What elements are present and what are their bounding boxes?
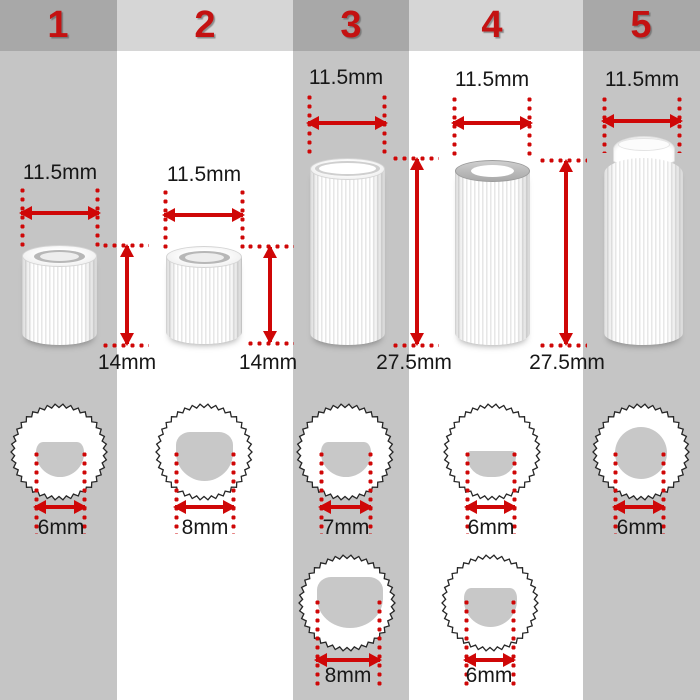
column-3-number: 3: [340, 2, 361, 48]
col4-height-arrow: [564, 161, 568, 344]
col3-hole-arrow: [320, 505, 371, 509]
col4-width-label: 11.5mm: [455, 68, 529, 92]
col5-hole-label: 6mm: [617, 516, 664, 540]
col3-cap-photo: [310, 158, 385, 345]
col2-hole-extension-left: [174, 450, 179, 534]
col1-cap-top-hole: [40, 252, 79, 261]
col3-height-arrow: [415, 159, 419, 344]
col2-hole-arrow: [175, 505, 234, 509]
col1-hole-arrow: [35, 505, 85, 509]
col4-hole2-arrow: [465, 658, 514, 662]
col3-width-arrow: [308, 121, 386, 125]
col2-hole-label: 8mm: [182, 516, 229, 540]
col3-width-label: 11.5mm: [309, 66, 383, 90]
col2-cap-top-hole: [185, 253, 224, 262]
col2-width-label: 11.5mm: [167, 163, 241, 187]
column-2-number: 2: [194, 2, 215, 48]
col2-width-arrow: [164, 213, 243, 217]
col2-cap-photo: [166, 246, 242, 344]
col3-hole2-extension-left: [315, 598, 320, 686]
col5-hole-shape: [615, 427, 667, 479]
col4-hole-arrow: [466, 505, 515, 509]
col3-hole2-arrow: [316, 658, 380, 662]
column-4-number: 4: [481, 2, 502, 48]
col1-height-label: 14mm: [98, 351, 156, 375]
col4-hole2-label: 6mm: [466, 664, 513, 688]
col5-cap-body: [604, 158, 683, 345]
col4-hole-label: 6mm: [468, 516, 515, 540]
col1-height-arrow: [125, 246, 129, 344]
col3-hole-label: 7mm: [323, 516, 370, 540]
cap-size-comparison-diagram: 1 2 3 4 5 11.5mm 14mm 11.5mm 14mm 11.5mm: [0, 0, 700, 700]
col1-width-label: 11.5mm: [23, 161, 97, 185]
col3-hole2-label: 8mm: [325, 664, 372, 688]
col1-cap-photo: [22, 245, 97, 345]
column-1-number: 1: [47, 2, 68, 48]
col2-height-arrow: [268, 247, 272, 342]
col4-cap-body: [455, 171, 530, 345]
col4-cap-photo: [455, 160, 530, 345]
col3-cap-body: [310, 169, 385, 345]
col5-width-arrow: [603, 119, 681, 123]
col2-height-label: 14mm: [239, 351, 297, 375]
col4-height-label: 27.5mm: [529, 351, 605, 375]
col2-hole-extension-right: [231, 450, 236, 534]
col3-height-label: 27.5mm: [376, 351, 452, 375]
column-1-body-band: [0, 51, 117, 700]
col4-cap-top-hole: [471, 165, 514, 177]
col5-width-label: 11.5mm: [605, 68, 679, 92]
col4-width-arrow: [453, 121, 531, 125]
col1-hole-label: 6mm: [38, 516, 85, 540]
col3-cap-top-hole: [319, 163, 376, 174]
column-5-number: 5: [630, 2, 651, 48]
col3-hole2-extension-right: [377, 598, 382, 686]
col2-cap-body: [166, 257, 242, 344]
col1-cap-body: [22, 256, 97, 345]
col5-hole-arrow: [614, 505, 664, 509]
col1-width-arrow: [21, 211, 99, 215]
